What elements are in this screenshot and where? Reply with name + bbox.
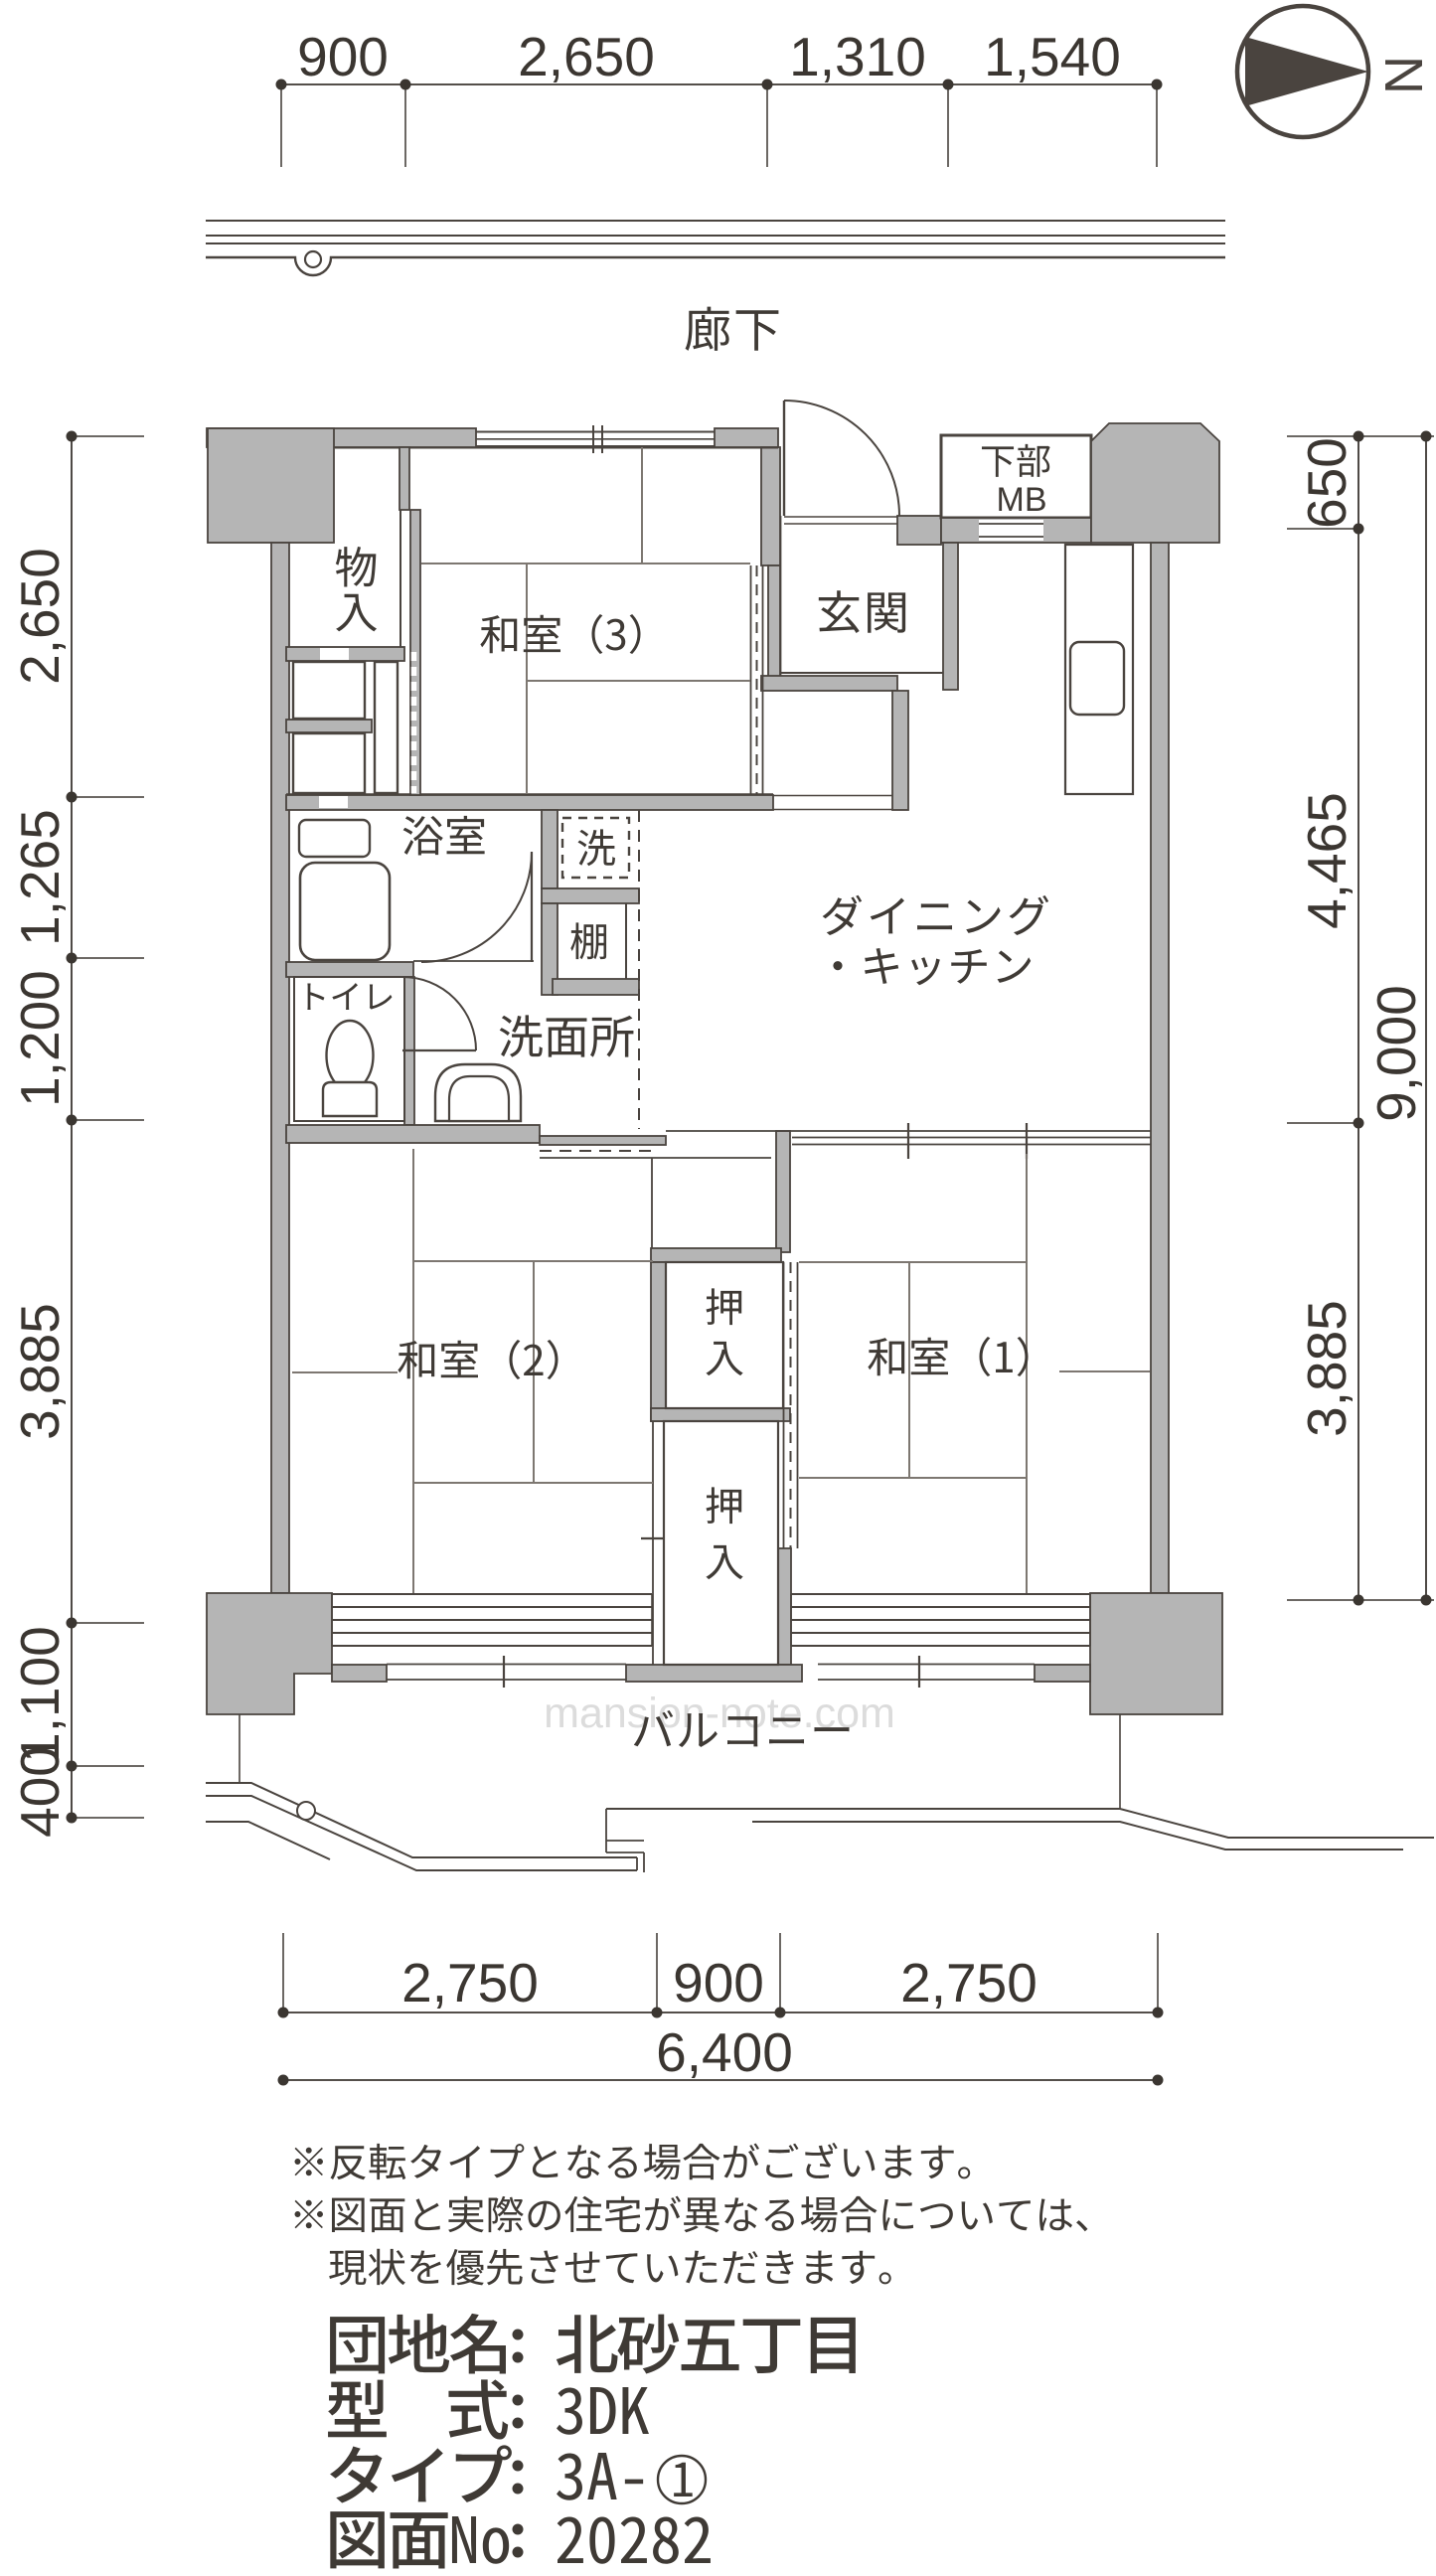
svg-text:2,650: 2,650 xyxy=(9,548,71,685)
svg-text:900: 900 xyxy=(297,26,389,87)
svg-text:1,200: 1,200 xyxy=(9,970,71,1107)
svg-text:2,650: 2,650 xyxy=(518,26,655,87)
svg-text:N: N xyxy=(1373,56,1433,94)
svg-text:4,465: 4,465 xyxy=(1296,792,1357,929)
svg-text:2,750: 2,750 xyxy=(401,1952,539,2013)
svg-text:3,885: 3,885 xyxy=(1296,1300,1357,1437)
svg-text:400: 400 xyxy=(9,1746,71,1838)
svg-text:MB: MB xyxy=(997,481,1047,519)
svg-text:6,400: 6,400 xyxy=(656,2021,793,2083)
svg-text:3,885: 3,885 xyxy=(9,1303,71,1440)
svg-text:1,265: 1,265 xyxy=(9,809,71,946)
svg-text:1,540: 1,540 xyxy=(984,26,1121,87)
svg-text:9,000: 9,000 xyxy=(1365,985,1427,1122)
svg-text:900: 900 xyxy=(673,1952,764,2013)
svg-text:1,100: 1,100 xyxy=(9,1626,71,1763)
svg-text:1,310: 1,310 xyxy=(789,26,926,87)
svg-text:2,750: 2,750 xyxy=(900,1952,1037,2013)
svg-text:650: 650 xyxy=(1296,437,1357,529)
